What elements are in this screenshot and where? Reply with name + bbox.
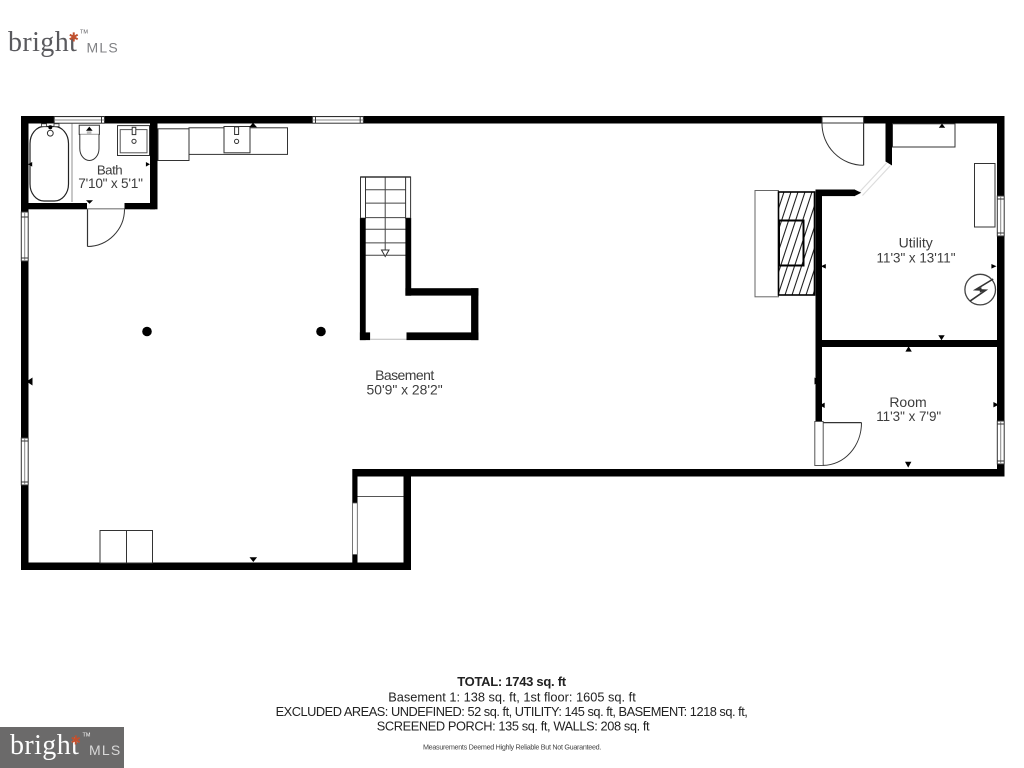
svg-text:bright: bright [8,27,77,58]
svg-text:11'3" x 13'11": 11'3" x 13'11" [877,251,956,266]
svg-text:50'9" x 28'2": 50'9" x 28'2" [367,382,443,398]
svg-text:MLS: MLS [87,40,119,56]
svg-text:bright: bright [10,730,79,761]
svg-text:✱: ✱ [71,734,82,748]
svg-text:✱: ✱ [69,31,80,45]
svg-text:EXCLUDED AREAS: UNDEFINED: 52: EXCLUDED AREAS: UNDEFINED: 52 sq. ft, UT… [276,704,748,719]
svg-text:Utility: Utility [899,234,933,250]
svg-text:Basement 1: 138 sq. ft, 1st fl: Basement 1: 138 sq. ft, 1st floor: 1605 … [388,690,636,705]
svg-text:7'10" x 5'1": 7'10" x 5'1" [78,176,143,191]
svg-text:Room: Room [889,394,926,410]
svg-text:SCREENED PORCH: 135 sq. ft, WA: SCREENED PORCH: 135 sq. ft, WALLS: 208 s… [377,719,650,734]
svg-text:Measurements Deemed Highly Rel: Measurements Deemed Highly Reliable But … [423,743,601,752]
svg-text:TM: TM [80,30,88,36]
svg-text:11'3" x 7'9": 11'3" x 7'9" [876,409,941,424]
svg-text:TM: TM [83,733,91,739]
svg-text:MLS: MLS [89,742,121,758]
svg-text:TOTAL: 1743 sq. ft: TOTAL: 1743 sq. ft [457,674,567,689]
